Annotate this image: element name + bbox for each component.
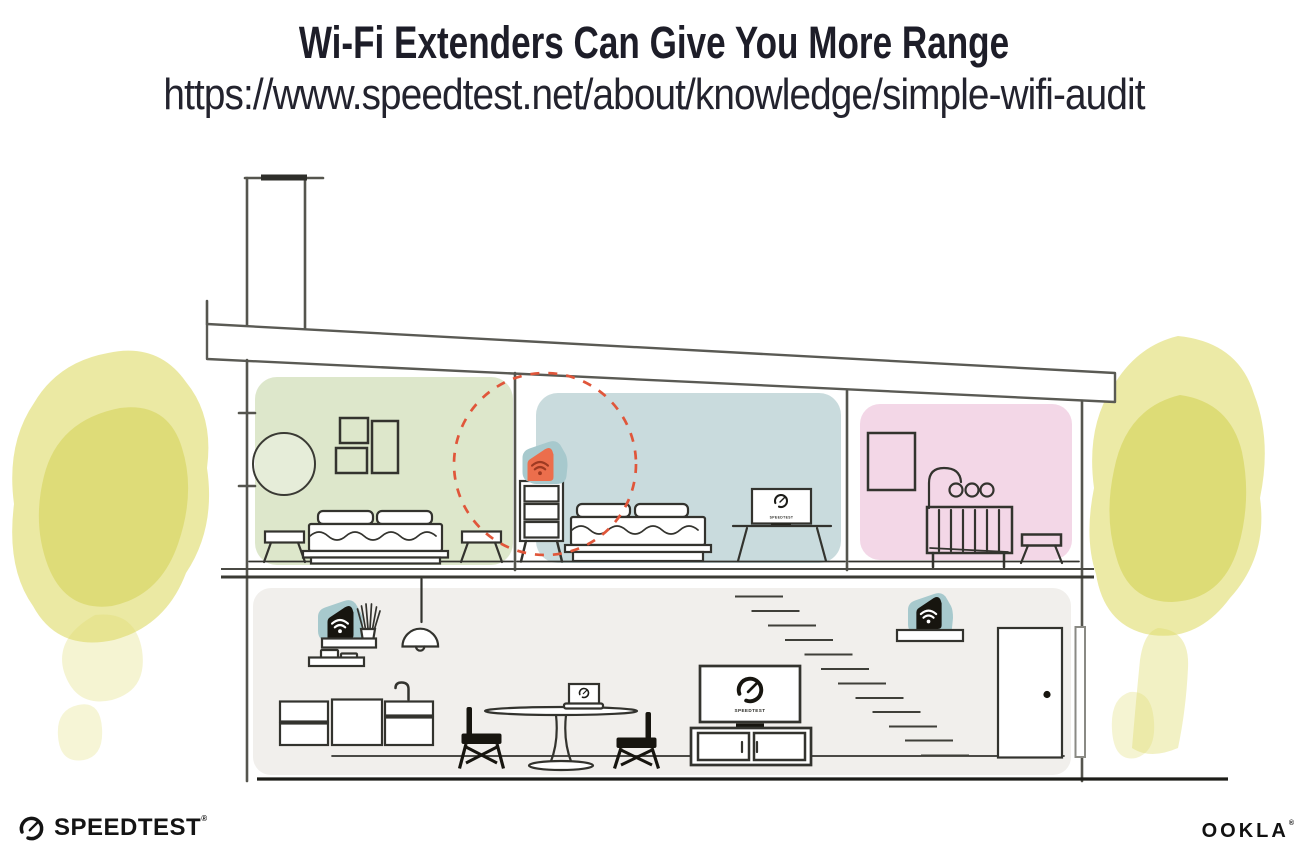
house-illustration: SPEEDTEST [0, 0, 1308, 861]
hallway-shelf [897, 630, 963, 641]
wall-shelf-lower [309, 658, 364, 667]
media-console [691, 728, 811, 765]
door-knob [1043, 691, 1050, 698]
registered-mark: ® [1289, 820, 1294, 827]
laptop [564, 684, 603, 709]
entry-door [998, 628, 1062, 758]
tree-left [12, 351, 209, 761]
chimney [245, 175, 323, 330]
tv-downstairs: SPEEDTEST [700, 666, 800, 727]
infographic-page: Wi-Fi Extenders Can Give You More Range … [0, 0, 1308, 861]
registered-mark: ® [201, 814, 207, 823]
door-sidelight [1076, 627, 1086, 757]
tv-brand-label: SPEEDTEST [735, 708, 766, 713]
wall-shelf-upper [322, 639, 376, 648]
speedtest-gauge-icon [18, 815, 45, 842]
round-mirror [253, 433, 315, 495]
ookla-wordmark: OOKLA [1202, 820, 1289, 842]
tv-screen [700, 666, 800, 722]
tv-brand-label: SPEEDTEST [770, 516, 794, 520]
chimney-cap [261, 175, 307, 181]
footer-speedtest-logo: SPEEDTEST® [18, 814, 208, 842]
footer-ookla-logo: OOKLA® [1202, 820, 1294, 843]
nursery-pink-background [860, 404, 1072, 560]
wifi-extender-highlighted [523, 441, 568, 484]
speedtest-wordmark: SPEEDTEST® [54, 814, 208, 842]
